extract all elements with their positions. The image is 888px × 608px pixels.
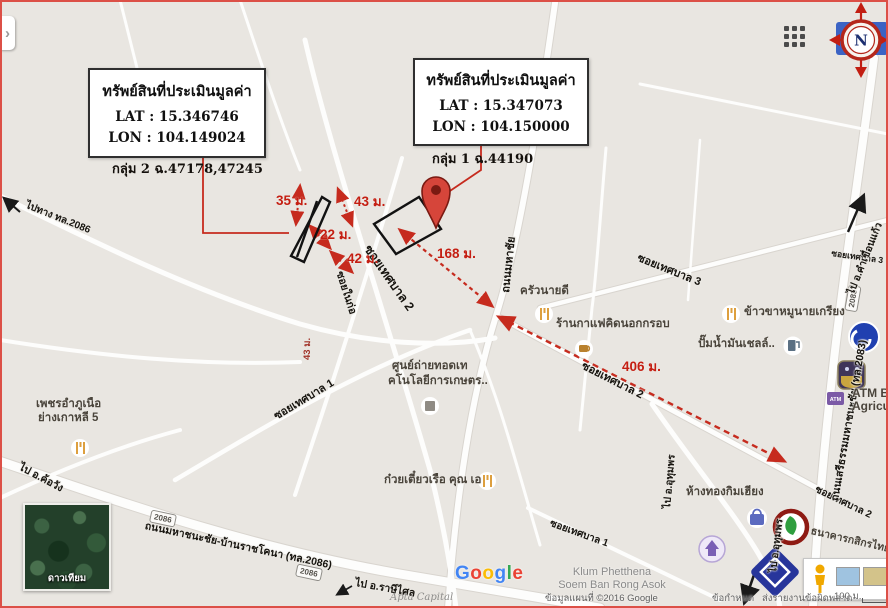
google-letter: g (495, 563, 507, 584)
apps-grid-icon[interactable] (784, 26, 805, 47)
callout-lon: LON : 104.150000 (423, 119, 579, 135)
place-name-line2: Soem Ban Rong Asok (558, 579, 666, 591)
map-canvas[interactable]: ATM (0, 0, 888, 608)
google-letter: G (455, 563, 470, 584)
callout-lon: LON : 104.149024 (98, 130, 256, 146)
place-name-line1: Klum Phetthena (573, 566, 651, 578)
callout-lat: LAT : 15.347073 (423, 98, 579, 114)
measurement-22m: 22 ม. (320, 228, 351, 243)
measurement-43m: 43 ม. (354, 195, 385, 210)
restaurant-icon[interactable] (722, 305, 740, 323)
poi-label-agri-center-line2[interactable]: คโนโลยีการเกษตร.. (388, 375, 488, 388)
shop-bag-icon[interactable] (747, 508, 767, 528)
poi-label-noodle-boat[interactable]: ก๋วยเตี๋ยวเรือ คุณ เอ (384, 474, 481, 487)
terms-link[interactable]: ข้อกำหนด (712, 591, 754, 606)
building-icon[interactable] (421, 397, 439, 415)
atm-badge-label: ATM (830, 397, 842, 403)
chevron-right-icon: › (5, 25, 10, 42)
poi-label-gold-shop[interactable]: ห้างทองกิมเฮียง (686, 486, 764, 499)
panel-expand-button[interactable]: › (0, 16, 15, 50)
watermark-text: Apta Capital (390, 592, 453, 603)
callout-lat: LAT : 15.346746 (98, 109, 256, 125)
poi-label-agri-center-line1[interactable]: ศูนย์ถ่ายทอดเท (392, 360, 468, 373)
atm-badge-icon[interactable]: ATM (827, 392, 844, 405)
callout-title: ทรัพย์สินที่ประเมินมูลค่า (423, 69, 579, 92)
poi-label-krua-nai-dee[interactable]: ครัวนายดี (520, 285, 569, 298)
google-letter: e (512, 563, 523, 584)
restaurant-icon[interactable] (535, 305, 553, 323)
callout-title: ทรัพย์สินที่ประเมินมูลค่า (98, 80, 256, 103)
compass-n-label: N (854, 32, 868, 50)
callout-property-group1: ทรัพย์สินที่ประเมินมูลค่า LAT : 15.34707… (413, 58, 589, 146)
satellite-toggle-label: ดาวเทียม (25, 571, 109, 586)
measurement-42m: 42 ม. (347, 252, 378, 267)
callout-caption-group1: กลุ่ม 1 ฉ.44190 (432, 148, 533, 169)
map-data-attribution: ข้อมูลแผนที่ ©2016 Google (545, 591, 658, 606)
restaurant-icon[interactable] (71, 439, 89, 457)
temple-icon[interactable] (699, 536, 725, 562)
scale-bar (862, 598, 888, 603)
callout-caption-group2: กลุ่ม 2 ฉ.47178,47245 (112, 158, 263, 179)
poi-label-atm-line2[interactable]: Agricul (852, 400, 888, 413)
callout-property-group2: ทรัพย์สินที่ประเมินมูลค่า LAT : 15.34674… (88, 68, 266, 158)
satellite-view-toggle[interactable]: ดาวเทียม (23, 503, 111, 591)
cafe-icon[interactable] (575, 340, 593, 358)
map-preview-tile[interactable] (836, 567, 860, 586)
scale-label: 100 ม. (834, 589, 861, 604)
poi-label-coffee-shop[interactable]: ร้านกาแฟคิดนอกกรอบ (556, 318, 670, 331)
fuel-station-icon[interactable] (784, 337, 803, 356)
measurement-406m: 406 ม. (622, 360, 661, 375)
google-letter: o (482, 563, 494, 584)
terrain-preview-tile[interactable] (863, 567, 887, 586)
poi-label-korean-bbq-line2[interactable]: ย่างเกาหลี 5 (38, 412, 98, 425)
google-letter: o (470, 563, 482, 584)
poi-label-shell-station[interactable]: ปั๊มน้ำมันเชลล์.. (698, 338, 775, 351)
compass[interactable]: N (829, 2, 888, 78)
map-pin[interactable] (422, 177, 450, 228)
measurement-168m: 168 ม. (437, 247, 476, 262)
poi-label-korean-bbq-line1[interactable]: เพชรอำภูเนือ (36, 398, 101, 411)
measurement-43m-side: 43 ม. (303, 338, 313, 360)
poi-label-khao-kha-mu[interactable]: ข้าวขาหมูนายเกรียง (744, 306, 845, 319)
measurement-arrows (296, 186, 784, 461)
measurement-35m: 35 ม. (276, 194, 307, 209)
google-logo[interactable]: Google (455, 563, 523, 585)
